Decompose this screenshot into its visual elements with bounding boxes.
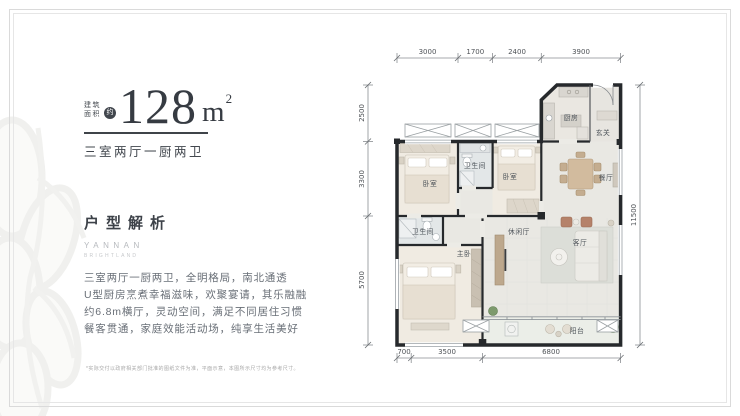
area-value: 128 bbox=[119, 86, 197, 127]
disclaimer: *实际交付以政府相关部门批准的图纸文件为准，平面示意，本图所示尺寸均为参考尺寸。 bbox=[86, 365, 299, 372]
analysis-paragraph: 三室两厅一厨两卫，全明格局，南北通透 U型厨房烹煮幸福滋味，欢聚宴请，其乐融融 … bbox=[84, 270, 346, 338]
room-label-bedroom1: 卧室 bbox=[423, 179, 438, 188]
floorplan: 3000 1700 2400 3900 2500 3300 5700 11500… bbox=[347, 23, 677, 380]
area-unit: m bbox=[202, 98, 225, 127]
dim-left-3: 5700 bbox=[358, 271, 366, 289]
dim-bottom-1: 700 bbox=[397, 348, 410, 356]
room-label-leisure: 休闲厅 bbox=[508, 227, 530, 236]
dim-left-1: 2500 bbox=[358, 104, 366, 122]
area-label-line2: 面积 bbox=[84, 111, 101, 120]
room-label-kitchen: 厨房 bbox=[564, 113, 579, 122]
dim-right-1: 11500 bbox=[630, 204, 638, 226]
brand-subtitle: BRIGHTLAND bbox=[84, 253, 346, 259]
analysis-line: 三室两厅一厨两卫，全明格局，南北通透 bbox=[84, 270, 346, 287]
dim-top-2: 1700 bbox=[466, 48, 484, 56]
dim-top-1: 3000 bbox=[419, 48, 437, 56]
room-label-balcony: 阳台 bbox=[570, 326, 585, 335]
room-label-bedroom2: 卧室 bbox=[503, 172, 518, 181]
analysis-line: 约6.8m横厅，灵动空间，满足不同居住习惯 bbox=[84, 304, 346, 321]
master-wardrobe bbox=[472, 249, 482, 307]
dim-bottom-2: 3500 bbox=[438, 348, 456, 356]
approx-badge: 约 bbox=[104, 107, 116, 119]
bedroom2-bed bbox=[494, 146, 541, 190]
room-label-dining: 餐厅 bbox=[599, 173, 614, 182]
room-label-living: 客厅 bbox=[573, 238, 588, 247]
dim-top-3: 2400 bbox=[508, 48, 526, 56]
area-label-line1: 建筑 bbox=[84, 102, 101, 111]
bedroom1-bed bbox=[399, 155, 455, 203]
room-label-bath1: 卫生间 bbox=[464, 161, 486, 170]
brand-name: YANNAN bbox=[84, 241, 346, 250]
dim-left-2: 3300 bbox=[358, 170, 366, 188]
analysis-title: 户型解析 bbox=[84, 212, 346, 233]
foyer-cabinet bbox=[597, 111, 617, 120]
analysis-line: U型厨房烹煮幸福滋味，欢聚宴请，其乐融融 bbox=[84, 287, 346, 304]
analysis-line: 餐客贯通，家庭效能活动场，纯享生活美好 bbox=[84, 321, 346, 338]
dim-top-4: 3900 bbox=[572, 48, 590, 56]
layout-type: 三室两厅一厨两卫 bbox=[84, 141, 346, 160]
area-label: 建筑 面积 bbox=[84, 102, 101, 127]
room-label-master: 主卧 bbox=[457, 249, 472, 258]
bedroom1-wardrobe bbox=[400, 144, 450, 153]
room-label-foyer: 玄关 bbox=[596, 128, 611, 137]
living-set bbox=[541, 217, 614, 283]
dim-bottom-3: 6800 bbox=[542, 348, 560, 356]
info-panel: 建筑 面积 约 128 m 2 三室两厅一厨两卫 户型解析 YANNAN BRI… bbox=[84, 86, 346, 338]
area-unit-sup: 2 bbox=[226, 92, 233, 105]
poster: 建筑 面积 约 128 m 2 三室两厅一厨两卫 户型解析 YANNAN BRI… bbox=[0, 0, 740, 416]
bedroom2-wardrobe bbox=[507, 199, 539, 213]
floorplan-svg: 3000 1700 2400 3900 2500 3300 5700 11500… bbox=[347, 23, 677, 375]
room-label-bath2: 卫生间 bbox=[412, 227, 434, 236]
area-header: 建筑 面积 约 128 m 2 bbox=[84, 86, 346, 127]
